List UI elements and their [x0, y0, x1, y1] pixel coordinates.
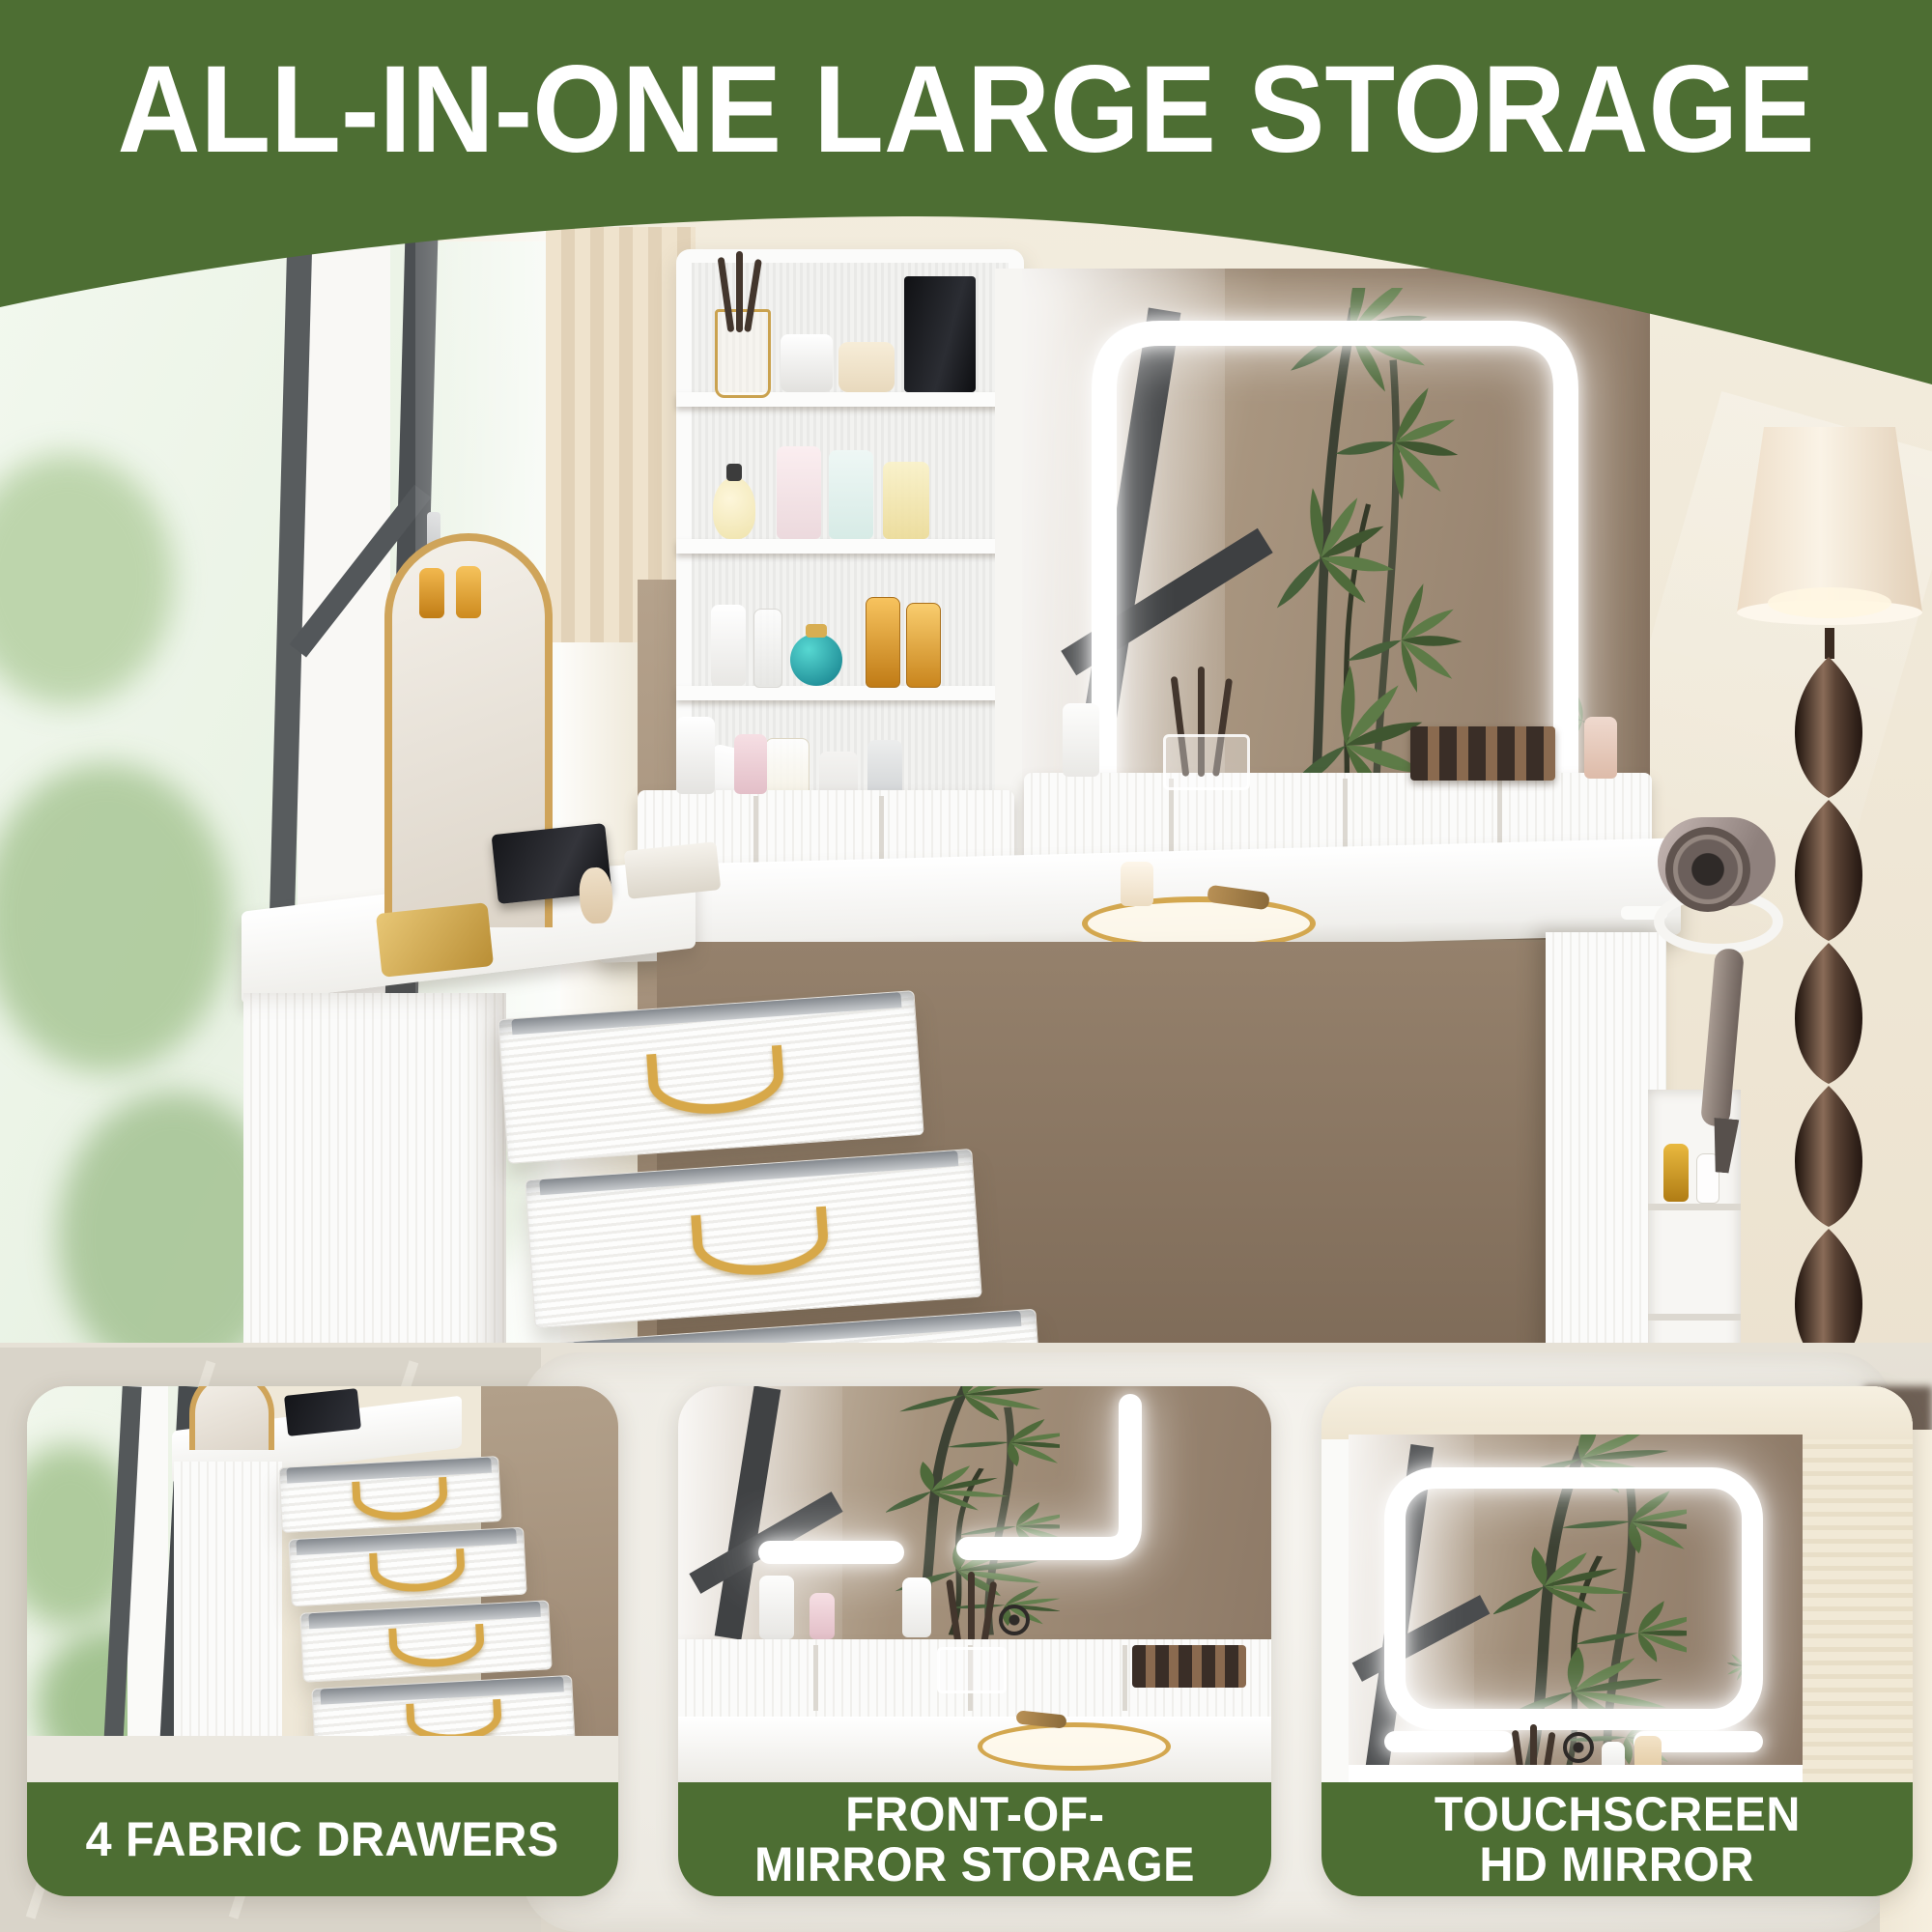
lamp-shade: [1737, 427, 1922, 612]
jewelry-mirror: [189, 1386, 274, 1450]
caption-line: 4 FABRIC DRAWERS: [86, 1814, 559, 1864]
inset-photo-drawers: [27, 1386, 618, 1782]
caption-line: FRONT-OF-: [845, 1789, 1104, 1839]
rug: [27, 1736, 618, 1782]
lipstick-rack: [1410, 726, 1555, 781]
fabric-drawer: [299, 1600, 552, 1682]
lotion-bottle: [777, 446, 821, 539]
drawer-cabinet: [174, 1462, 282, 1742]
pump-bottle: [676, 717, 715, 794]
reflected-bottle: [419, 568, 444, 618]
mirror-side-board: [1321, 1439, 1349, 1782]
drawer-cabinet: [243, 993, 506, 1386]
serum-bottle: [906, 603, 941, 688]
touch-sensor-icon: [999, 1605, 1030, 1635]
mirror-glass: [1349, 1435, 1803, 1782]
spray-bottle: [902, 1577, 931, 1637]
book-stack: [624, 841, 722, 899]
drawer-handle: [646, 1045, 785, 1119]
drawer-handle: [388, 1624, 485, 1669]
fabric-drawer: [497, 990, 923, 1164]
perfume-bottle: [759, 1576, 794, 1639]
led-light-strip: [1349, 1435, 1803, 1782]
bottle-cap: [726, 464, 742, 481]
lipstick-rack: [1132, 1645, 1246, 1688]
oil-flask: [883, 462, 929, 539]
brush-cup: [1163, 734, 1250, 790]
shelf: [676, 539, 1024, 554]
drawer-handle: [691, 1207, 830, 1280]
tabletop: [678, 1717, 1271, 1782]
gold-tray-small: [376, 902, 494, 978]
inset-photo-storage: [678, 1386, 1271, 1782]
brush-cup: [937, 1647, 1007, 1693]
inset-caption: FRONT-OF- MIRROR STORAGE: [678, 1782, 1271, 1896]
perfume-bottle: [810, 1593, 835, 1639]
inset-fabric-drawers: 4 FABRIC DRAWERS: [27, 1386, 618, 1896]
page-title: ALL-IN-ONE LARGE STORAGE: [68, 39, 1864, 181]
lotion-bottle: [829, 450, 873, 539]
teal-ball-jar: [790, 634, 842, 686]
spray-bottle: [711, 605, 746, 686]
perfume-bottle: [1063, 703, 1099, 777]
caption-line: TOUCHSCREEN: [1434, 1789, 1800, 1839]
inset-photo-mirror: [1321, 1386, 1913, 1782]
front-of-mirror-storage: [678, 1639, 1271, 1717]
inset-front-of-mirror-storage: FRONT-OF- MIRROR STORAGE: [678, 1386, 1271, 1896]
mirror-frame-side: [1800, 1386, 1913, 1782]
inset-caption: TOUCHSCREEN HD MIRROR: [1321, 1782, 1913, 1896]
fabric-drawer: [525, 1149, 982, 1328]
caption-line: HD MIRROR: [1480, 1839, 1755, 1889]
round-bottle: [713, 477, 755, 539]
slim-bottle: [753, 609, 782, 688]
black-case: [284, 1388, 361, 1436]
ledge-divider: [1122, 1645, 1127, 1711]
serum-bottle: [866, 597, 900, 688]
inset-caption: 4 FABRIC DRAWERS: [27, 1782, 618, 1896]
perfume-bottle: [734, 734, 767, 794]
shelf: [676, 686, 1024, 700]
gold-tray: [978, 1722, 1171, 1771]
caption-line: MIRROR STORAGE: [754, 1839, 1195, 1889]
gold-cap: [806, 624, 827, 638]
product-graphic: ALL-IN-ONE LARGE STORAGE: [0, 0, 1932, 1932]
perfume-bottle: [1584, 717, 1617, 779]
drawer-handle: [369, 1548, 466, 1594]
makeup-brush: [968, 1572, 975, 1647]
floor-lamp: [1727, 413, 1932, 1387]
mirror-frame-top: [1321, 1386, 1913, 1439]
fabric-drawer: [278, 1456, 501, 1533]
fabric-drawer: [288, 1527, 526, 1607]
oil-bottle: [1663, 1144, 1689, 1202]
drawer-handle: [352, 1477, 448, 1522]
touch-sensor-icon: [1563, 1732, 1594, 1763]
organizer-edge: [1349, 1765, 1803, 1782]
cream-jar: [1121, 862, 1153, 906]
ledge-divider: [813, 1645, 818, 1711]
reflected-bottle: [456, 566, 481, 618]
inset-touchscreen-hd-mirror: TOUCHSCREEN HD MIRROR: [1321, 1386, 1913, 1896]
